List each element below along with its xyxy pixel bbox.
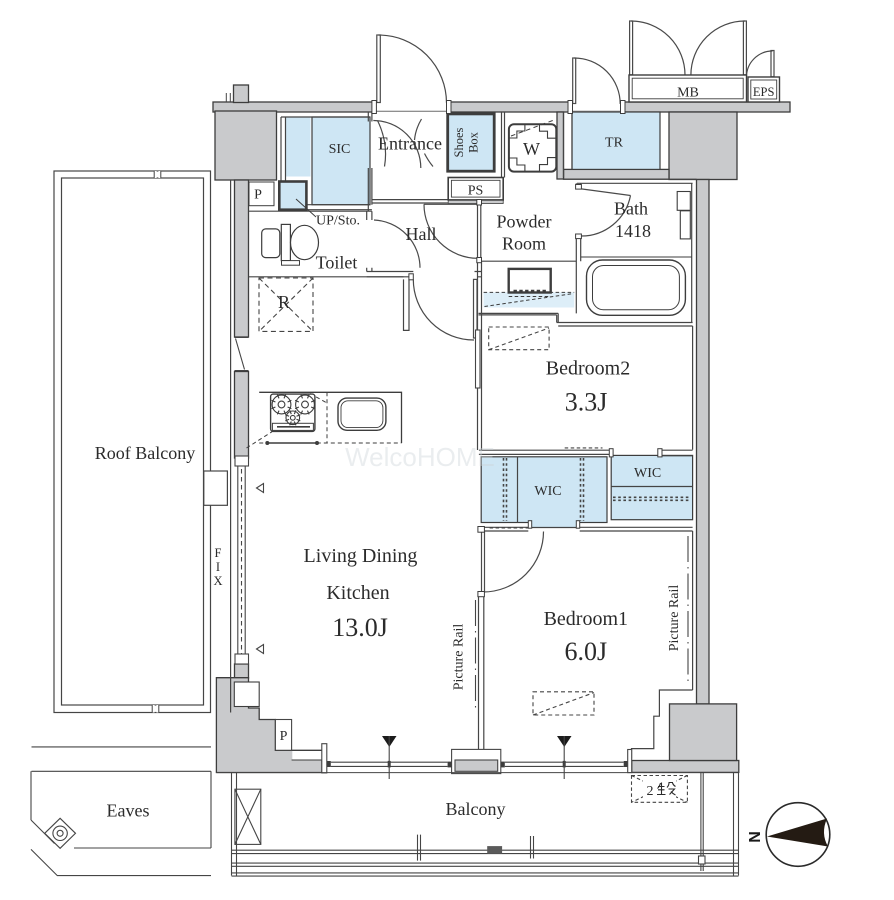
svg-text:EPS: EPS: [753, 85, 775, 99]
svg-text:Picture Rail: Picture Rail: [452, 624, 467, 691]
svg-text:Bath: Bath: [614, 199, 648, 219]
svg-text:13.0J: 13.0J: [332, 613, 388, 642]
svg-text:Kitchen: Kitchen: [326, 582, 389, 604]
svg-text:WIC: WIC: [634, 466, 661, 481]
svg-text:Balcony: Balcony: [446, 799, 506, 819]
svg-text:Shoes: Shoes: [452, 127, 466, 157]
svg-text:Powder: Powder: [497, 212, 552, 232]
svg-text:Toilet: Toilet: [316, 253, 358, 273]
svg-text:Room: Room: [502, 234, 546, 254]
svg-text:Living Dining: Living Dining: [304, 545, 418, 567]
svg-text:SIC: SIC: [329, 142, 351, 157]
svg-text:UP/Sto.: UP/Sto.: [316, 214, 360, 229]
svg-text:I: I: [216, 560, 220, 574]
svg-text:WIC: WIC: [534, 484, 561, 499]
svg-text:1418: 1418: [615, 221, 651, 241]
svg-text:WelcoHOME: WelcoHOME: [345, 442, 495, 472]
svg-text:MB: MB: [677, 86, 699, 101]
svg-text:Picture Rail: Picture Rail: [667, 585, 682, 652]
svg-text:2: 2: [647, 784, 654, 799]
svg-text:TR: TR: [605, 136, 624, 151]
svg-text:Eaves: Eaves: [107, 801, 150, 821]
svg-text:3.3J: 3.3J: [565, 388, 608, 417]
svg-text:P: P: [254, 188, 262, 203]
svg-text:PS: PS: [468, 184, 484, 199]
svg-text:Bedroom2: Bedroom2: [546, 358, 630, 380]
svg-text:Box: Box: [467, 131, 481, 153]
svg-text:N: N: [747, 831, 764, 843]
svg-text:Roof Balcony: Roof Balcony: [95, 443, 196, 463]
svg-text:F: F: [215, 546, 222, 560]
svg-text:Entrance: Entrance: [378, 134, 442, 154]
svg-text:6.0J: 6.0J: [564, 637, 607, 666]
svg-text:X: X: [213, 574, 222, 588]
svg-text:P: P: [280, 729, 288, 744]
svg-text:R: R: [278, 292, 290, 312]
svg-text:W: W: [523, 139, 540, 159]
svg-text:Bedroom1: Bedroom1: [544, 608, 628, 630]
svg-text:Hall: Hall: [406, 224, 437, 244]
